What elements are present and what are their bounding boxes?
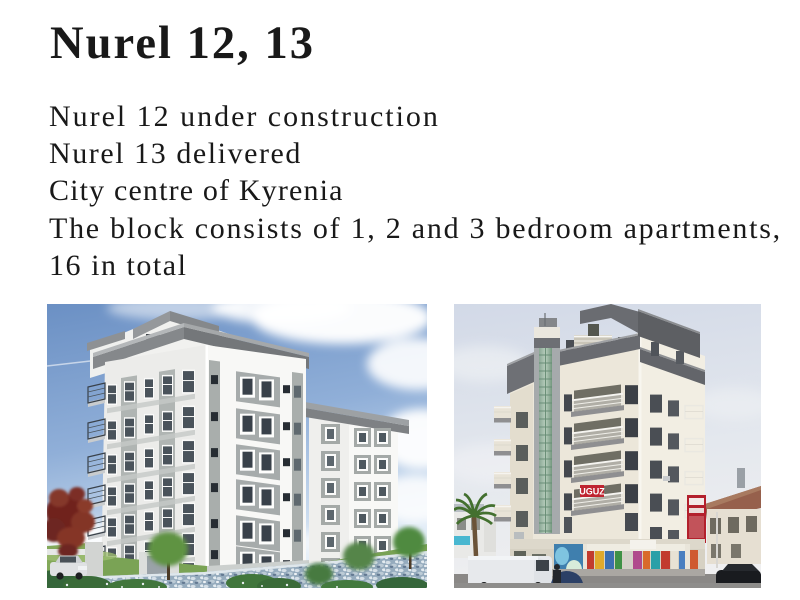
svg-text:UGUZ: UGUZ: [579, 487, 605, 497]
